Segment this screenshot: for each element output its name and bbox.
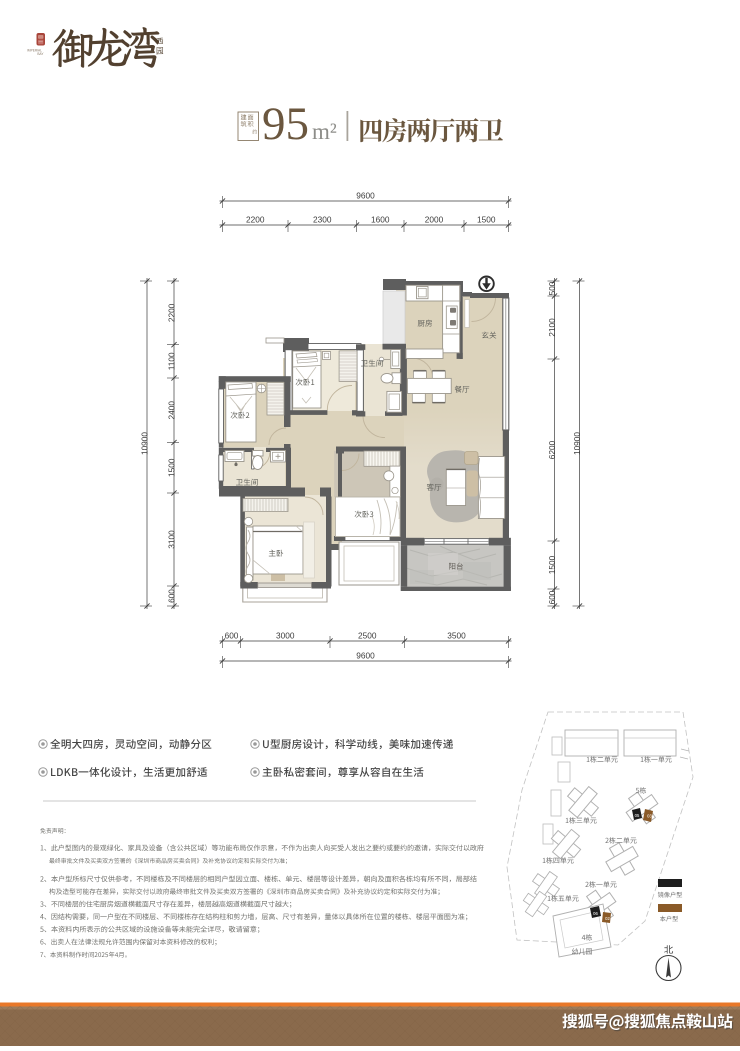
svg-text:2000: 2000 <box>425 215 444 225</box>
svg-text:1500: 1500 <box>477 215 496 225</box>
svg-text:10900: 10900 <box>572 432 582 455</box>
svg-text:9600: 9600 <box>356 651 375 661</box>
svg-text:3000: 3000 <box>276 631 295 641</box>
svg-text:1500: 1500 <box>547 555 557 574</box>
svg-text:6200: 6200 <box>547 440 557 459</box>
svg-text:2200: 2200 <box>246 215 265 225</box>
svg-text:02: 02 <box>605 916 610 921</box>
svg-text:600: 600 <box>547 590 557 604</box>
svg-text:600: 600 <box>167 589 177 603</box>
svg-text:06: 06 <box>593 911 598 916</box>
svg-text:3100: 3100 <box>167 530 177 549</box>
svg-text:9600: 9600 <box>356 191 375 201</box>
svg-text:600: 600 <box>225 631 239 641</box>
svg-text:2100: 2100 <box>547 318 557 337</box>
svg-text:1100: 1100 <box>167 352 177 370</box>
svg-text:BAY: BAY <box>37 52 44 56</box>
svg-text:03: 03 <box>647 814 652 819</box>
svg-text:3500: 3500 <box>447 631 466 641</box>
svg-text:2200: 2200 <box>167 303 177 322</box>
svg-text:95: 95 <box>262 98 309 150</box>
svg-text:2400: 2400 <box>167 401 177 420</box>
svg-text:1600: 1600 <box>371 215 390 225</box>
svg-text:10900: 10900 <box>140 432 150 455</box>
svg-text:2300: 2300 <box>313 215 332 225</box>
svg-text:2500: 2500 <box>358 631 377 641</box>
svg-text:1500: 1500 <box>167 458 177 477</box>
svg-text:05: 05 <box>635 813 640 818</box>
svg-text:m²: m² <box>312 119 337 144</box>
svg-text:500: 500 <box>547 281 557 295</box>
